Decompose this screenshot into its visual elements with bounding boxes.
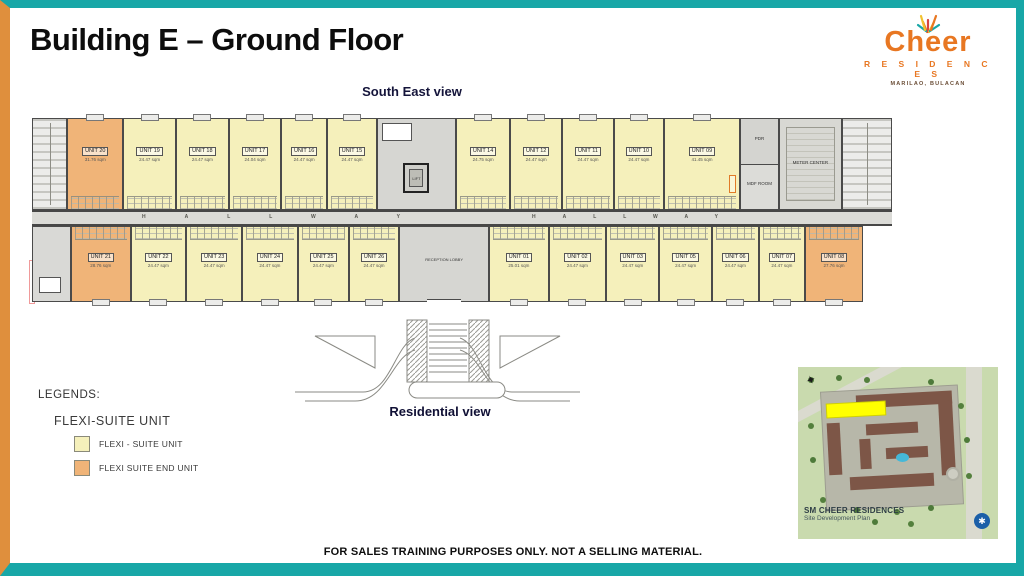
unit-09: UNIT 09 41.45 sqm	[664, 118, 740, 210]
legend-subheading: FLEXI-SUITE UNIT	[54, 414, 170, 428]
mdf-room: MDF ROOM	[741, 165, 778, 210]
site-plan-caption: SM CHEER RESIDENCES Site Development Pla…	[804, 506, 904, 523]
pool	[896, 453, 909, 462]
unit-fixtures	[763, 227, 801, 240]
unit-area: 24.47 sqm	[364, 263, 385, 268]
unit-area: 24.47 sqm	[192, 157, 213, 162]
unit-25: UNIT 25 24.47 sqm	[298, 226, 349, 302]
unit-08: UNIT 08 27.76 sqm	[805, 226, 863, 302]
unit-22: UNIT 22 24.47 sqm	[131, 226, 187, 302]
unit-label: UNIT 16	[291, 147, 317, 156]
unit-fixtures	[663, 227, 708, 240]
unit-area: 24.47 sqm	[628, 157, 649, 162]
unit-label: UNIT 08	[821, 253, 847, 262]
building-block	[827, 423, 843, 476]
unit-20: UNIT 20 31.76 sqm	[67, 118, 123, 210]
legend-swatch-end	[74, 460, 90, 476]
elevator-shaft: LIFT	[403, 163, 429, 193]
legend-swatch-flexi	[74, 436, 90, 452]
unit-area: 28.76 sqm	[90, 263, 111, 268]
unit-label: UNIT 09	[689, 147, 715, 156]
unit-label: UNIT 17	[242, 147, 268, 156]
stairwell-right	[842, 118, 892, 210]
unit-01: UNIT 01 25.01 sqm	[489, 226, 548, 302]
unit-label: UNIT 15	[339, 147, 365, 156]
hallway: HALLWAY HALLWAY	[32, 210, 892, 226]
unit-area: 27.76 sqm	[823, 263, 844, 268]
unit-fixtures	[246, 227, 294, 240]
site-plan-title: SM CHEER RESIDENCES	[804, 506, 904, 516]
site-plan-thumbnail: ✦ SM CHEER RESIDENCES Site Development P…	[798, 367, 998, 539]
unit-fixtures	[331, 196, 373, 209]
unit-label: UNIT 14	[470, 147, 496, 156]
unit-area: 24.47 sqm	[341, 157, 362, 162]
unit-fixtures	[233, 196, 278, 209]
unit-area: 24.47 sqm	[526, 157, 547, 162]
unit-05: UNIT 05 24.47 sqm	[659, 226, 712, 302]
unit-fixtures	[190, 227, 238, 240]
cheer-residences-logo: Cheer R E S I D E N C E S MARILAO, BULAC…	[862, 10, 994, 87]
logo-subtitle: R E S I D E N C E S	[862, 59, 994, 79]
unit-21: UNIT 21 28.76 sqm	[71, 226, 130, 302]
sm-city-logo-icon: ✱	[974, 513, 990, 529]
building-block	[859, 439, 872, 470]
unit-fixtures	[135, 227, 183, 240]
utility-rooms: PDR MDF ROOM	[740, 118, 779, 210]
hallway-label: HALLWAY	[532, 214, 762, 220]
stairwell-left	[32, 118, 67, 210]
legend-label: FLEXI - SUITE UNIT	[99, 439, 183, 449]
logo-wordmark: Cheer	[862, 28, 994, 57]
unit-label: UNIT 01	[506, 253, 532, 262]
unit-fixtures	[285, 196, 323, 209]
unit-area: 24.47 sqm	[725, 263, 746, 268]
unit-fixtures	[460, 196, 506, 209]
unit-03: UNIT 03 24.47 sqm	[606, 226, 659, 302]
logo-location: MARILAO, BULACAN	[862, 81, 994, 87]
unit-11: UNIT 11 24.47 sqm	[562, 118, 614, 210]
unit-fixtures	[610, 227, 655, 240]
unit-18: UNIT 18 24.47 sqm	[176, 118, 229, 210]
unit-fixtures	[353, 227, 395, 240]
unit-fixtures	[302, 227, 345, 240]
unit-24: UNIT 24 24.47 sqm	[242, 226, 298, 302]
unit-label: UNIT 26	[361, 253, 387, 262]
unit-label: UNIT 25	[310, 253, 336, 262]
slide-content: Building E – Ground Floor Cheer R E S I …	[10, 8, 1016, 563]
unit-19: UNIT 19 24.47 sqm	[123, 118, 176, 210]
legend-item-flexi-suite: FLEXI - SUITE UNIT	[74, 436, 183, 452]
reception-lobby: RECEPTION LOBBY	[399, 226, 489, 302]
entrance-opening	[427, 299, 461, 302]
unit-fixtures	[180, 196, 225, 209]
unit-area: 24.47 sqm	[622, 263, 643, 268]
unit-fixtures	[493, 227, 544, 240]
compass-icon: ✦	[804, 372, 818, 389]
unit-area: 24.47 sqm	[259, 263, 280, 268]
view-label-south-east: South East view	[332, 84, 492, 99]
unit-area: 41.45 sqm	[691, 157, 712, 162]
unit-label: UNIT 05	[672, 253, 698, 262]
unit-area: 24.47 sqm	[139, 157, 160, 162]
unit-fixtures	[618, 196, 660, 209]
unit-12: UNIT 12 24.47 sqm	[510, 118, 562, 210]
unit-label: UNIT 24	[257, 253, 283, 262]
unit-area: 24.47 sqm	[313, 263, 334, 268]
view-label-residential: Residential view	[298, 404, 582, 419]
unit-fixtures	[514, 196, 558, 209]
pdr-room: PDR	[741, 119, 778, 165]
legend-heading: LEGENDS:	[38, 389, 100, 401]
disclaimer-text: FOR SALES TRAINING PURPOSES ONLY. NOT A …	[10, 546, 1016, 558]
unit-23: UNIT 23 24.47 sqm	[186, 226, 242, 302]
unit-fixtures	[809, 227, 859, 240]
garbage-room	[32, 226, 71, 302]
unit-label: UNIT 02	[564, 253, 590, 262]
slide-frame: Building E – Ground Floor Cheer R E S I …	[0, 0, 1024, 576]
unit-10: UNIT 10 24.47 sqm	[614, 118, 664, 210]
unit-highlight-mark	[729, 175, 736, 193]
unit-15: UNIT 15 24.47 sqm	[327, 118, 377, 210]
unit-label: UNIT 21	[88, 253, 114, 262]
unit-area: 24.75 sqm	[473, 157, 494, 162]
unit-area: 24.47 sqm	[567, 263, 588, 268]
unit-area: 24.47 sqm	[148, 263, 169, 268]
unit-fixtures	[127, 196, 172, 209]
unit-02: UNIT 02 24.47 sqm	[549, 226, 607, 302]
unit-06: UNIT 06 24.47 sqm	[712, 226, 758, 302]
unit-label: UNIT 23	[201, 253, 227, 262]
floor-plan: UNIT 20 31.76 sqm UNIT 19 24.47 sqm UNIT…	[32, 118, 892, 314]
unit-label: UNIT 11	[575, 147, 601, 156]
unit-17: UNIT 17 24.04 sqm	[229, 118, 282, 210]
meter-center-room: METER CENTER	[779, 118, 842, 210]
unit-fixtures	[553, 227, 603, 240]
hallway-label: HALLWAY	[142, 214, 442, 220]
unit-label: UNIT 12	[523, 147, 549, 156]
service-room	[39, 277, 61, 293]
unit-label: UNIT 22	[145, 253, 171, 262]
unit-label: UNIT 07	[769, 253, 795, 262]
unit-area: 24.04 sqm	[244, 157, 265, 162]
legend-label: FLEXI SUITE END UNIT	[99, 463, 199, 473]
unit-area: 24.47 sqm	[577, 157, 598, 162]
unit-fixtures	[566, 196, 610, 209]
legend-item-end-unit: FLEXI SUITE END UNIT	[74, 460, 199, 476]
page-title: Building E – Ground Floor	[30, 22, 403, 58]
unit-label: UNIT 19	[136, 147, 162, 156]
plan-bottom-row: UNIT 21 28.76 sqm UNIT 22 24.47 sqm UNIT…	[32, 226, 863, 302]
unit-label: UNIT 18	[189, 147, 215, 156]
unit-area: 24.47 sqm	[771, 263, 792, 268]
unit-label: UNIT 20	[82, 147, 108, 156]
unit-fixtures	[75, 227, 126, 240]
utility-closet	[382, 123, 412, 141]
unit-area: 24.47 sqm	[675, 263, 696, 268]
unit-label: UNIT 10	[626, 147, 652, 156]
site-plan-subtitle: Site Development Plan	[804, 515, 904, 523]
plan-top-row: UNIT 20 31.76 sqm UNIT 19 24.47 sqm UNIT…	[32, 118, 892, 210]
unit-area: 25.01 sqm	[508, 263, 529, 268]
unit-07: UNIT 07 24.47 sqm	[759, 226, 805, 302]
unit-fixtures	[71, 196, 119, 209]
unit-area: 24.47 sqm	[294, 157, 315, 162]
unit-fixtures	[668, 196, 736, 209]
unit-label: UNIT 03	[620, 253, 646, 262]
unit-16: UNIT 16 24.47 sqm	[281, 118, 327, 210]
unit-26: UNIT 26 24.47 sqm	[349, 226, 399, 302]
unit-label: UNIT 06	[722, 253, 748, 262]
unit-14: UNIT 14 24.75 sqm	[456, 118, 510, 210]
unit-area: 24.47 sqm	[204, 263, 225, 268]
unit-area: 31.76 sqm	[85, 157, 106, 162]
lift-lobby: LIFT	[377, 118, 456, 210]
elevator-cab: LIFT	[409, 169, 423, 187]
roundabout	[946, 467, 960, 481]
unit-fixtures	[716, 227, 754, 240]
entrance-drawing	[295, 308, 580, 407]
